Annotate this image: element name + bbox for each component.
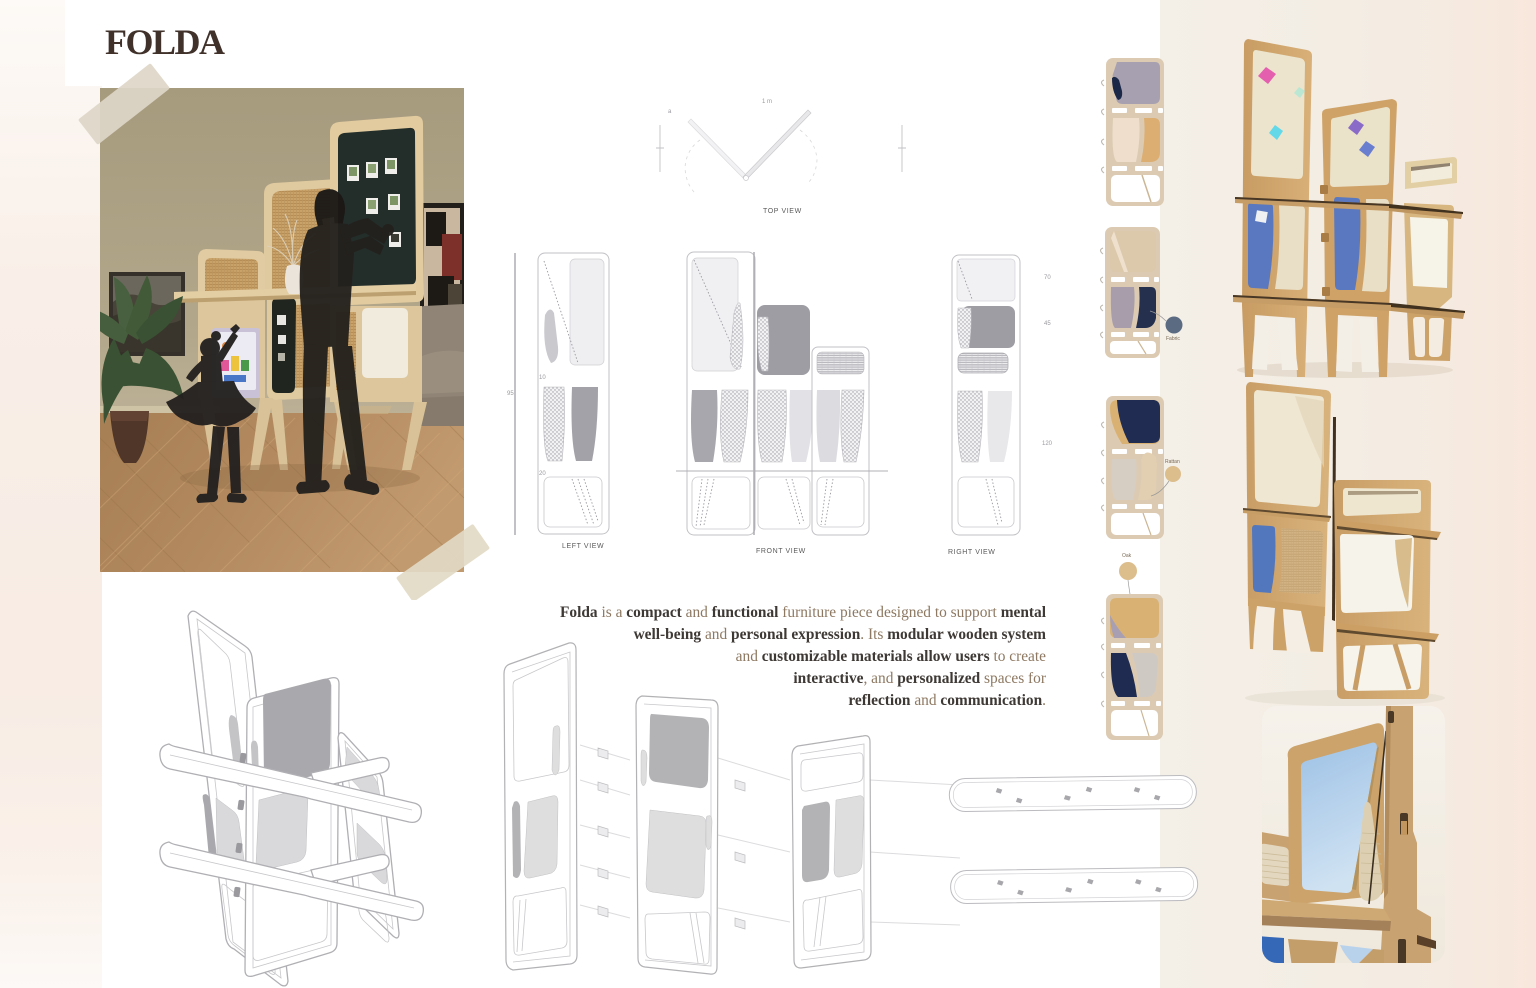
svg-text:Fabric: Fabric [1166, 336, 1180, 342]
svg-text:45: 45 [1044, 321, 1051, 327]
svg-text:LEFT VIEW: LEFT VIEW [562, 543, 604, 550]
svg-text:70: 70 [1044, 275, 1051, 281]
svg-text:FRONT VIEW: FRONT VIEW [756, 548, 806, 555]
svg-text:a: a [668, 109, 672, 115]
svg-text:95: 95 [507, 391, 514, 397]
svg-text:RIGHT VIEW: RIGHT VIEW [948, 549, 995, 556]
svg-text:1 m: 1 m [762, 99, 772, 105]
svg-text:Oak: Oak [1122, 553, 1132, 559]
svg-text:120: 120 [1042, 441, 1053, 447]
svg-text:TOP VIEW: TOP VIEW [763, 208, 802, 215]
svg-text:Rattan: Rattan [1165, 459, 1180, 465]
svg-text:10: 10 [539, 375, 546, 381]
svg-text:20: 20 [539, 471, 546, 477]
